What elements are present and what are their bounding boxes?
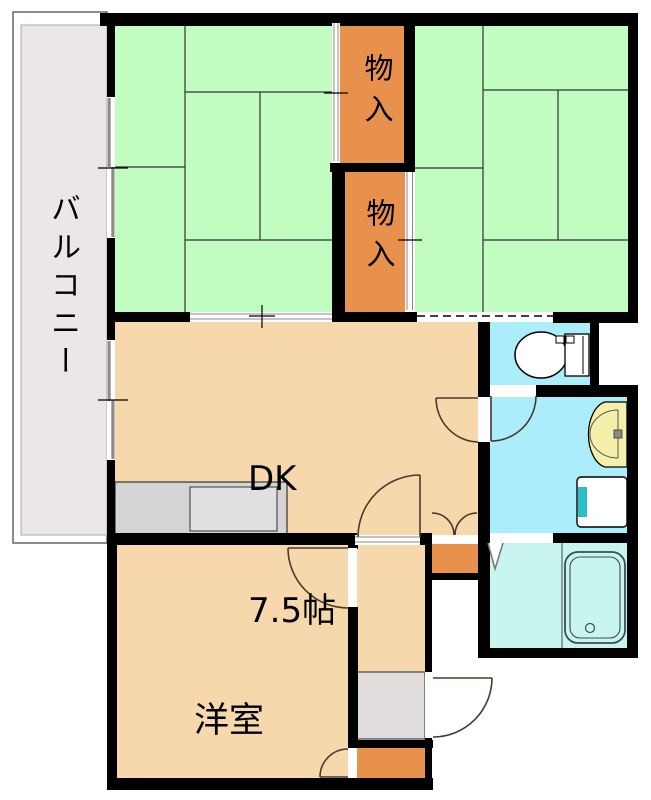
dk-closet (432, 544, 478, 573)
hallway (357, 545, 425, 672)
closet-top-label: 物入 (356, 53, 398, 135)
western-room-doorway (348, 548, 357, 607)
washroom-doorway (478, 397, 490, 442)
toilet (515, 332, 589, 378)
toilet-doorway (491, 386, 536, 396)
dk-name: DK (248, 457, 336, 501)
open-wall-dashed (417, 312, 553, 322)
entrance-door (433, 678, 492, 737)
shoe-cabinet (357, 748, 425, 778)
balcony-label: バルコニー (40, 193, 84, 383)
tatami-room-left (115, 25, 332, 312)
wash-basin (588, 402, 627, 467)
bathroom-doorway (490, 534, 553, 543)
washing-machine-pan (577, 477, 627, 527)
western-room-name: 洋室 (194, 700, 264, 742)
western-room-label: 洋室 5帖 (194, 616, 264, 800)
dk-closet-doorway (432, 535, 478, 544)
bathroom (490, 543, 627, 648)
faucet (614, 430, 622, 438)
entrance-doorway (425, 672, 432, 738)
floor-plan: バルコニー 物入 物入 DK 7.5帖 洋室 5帖 (0, 0, 651, 800)
closet-bottom-label: 物入 (358, 198, 400, 280)
dk-hallway-doorway (355, 535, 420, 545)
western-closet-doorway (348, 748, 357, 778)
room-fills (115, 25, 628, 778)
entrance-step (357, 672, 425, 739)
